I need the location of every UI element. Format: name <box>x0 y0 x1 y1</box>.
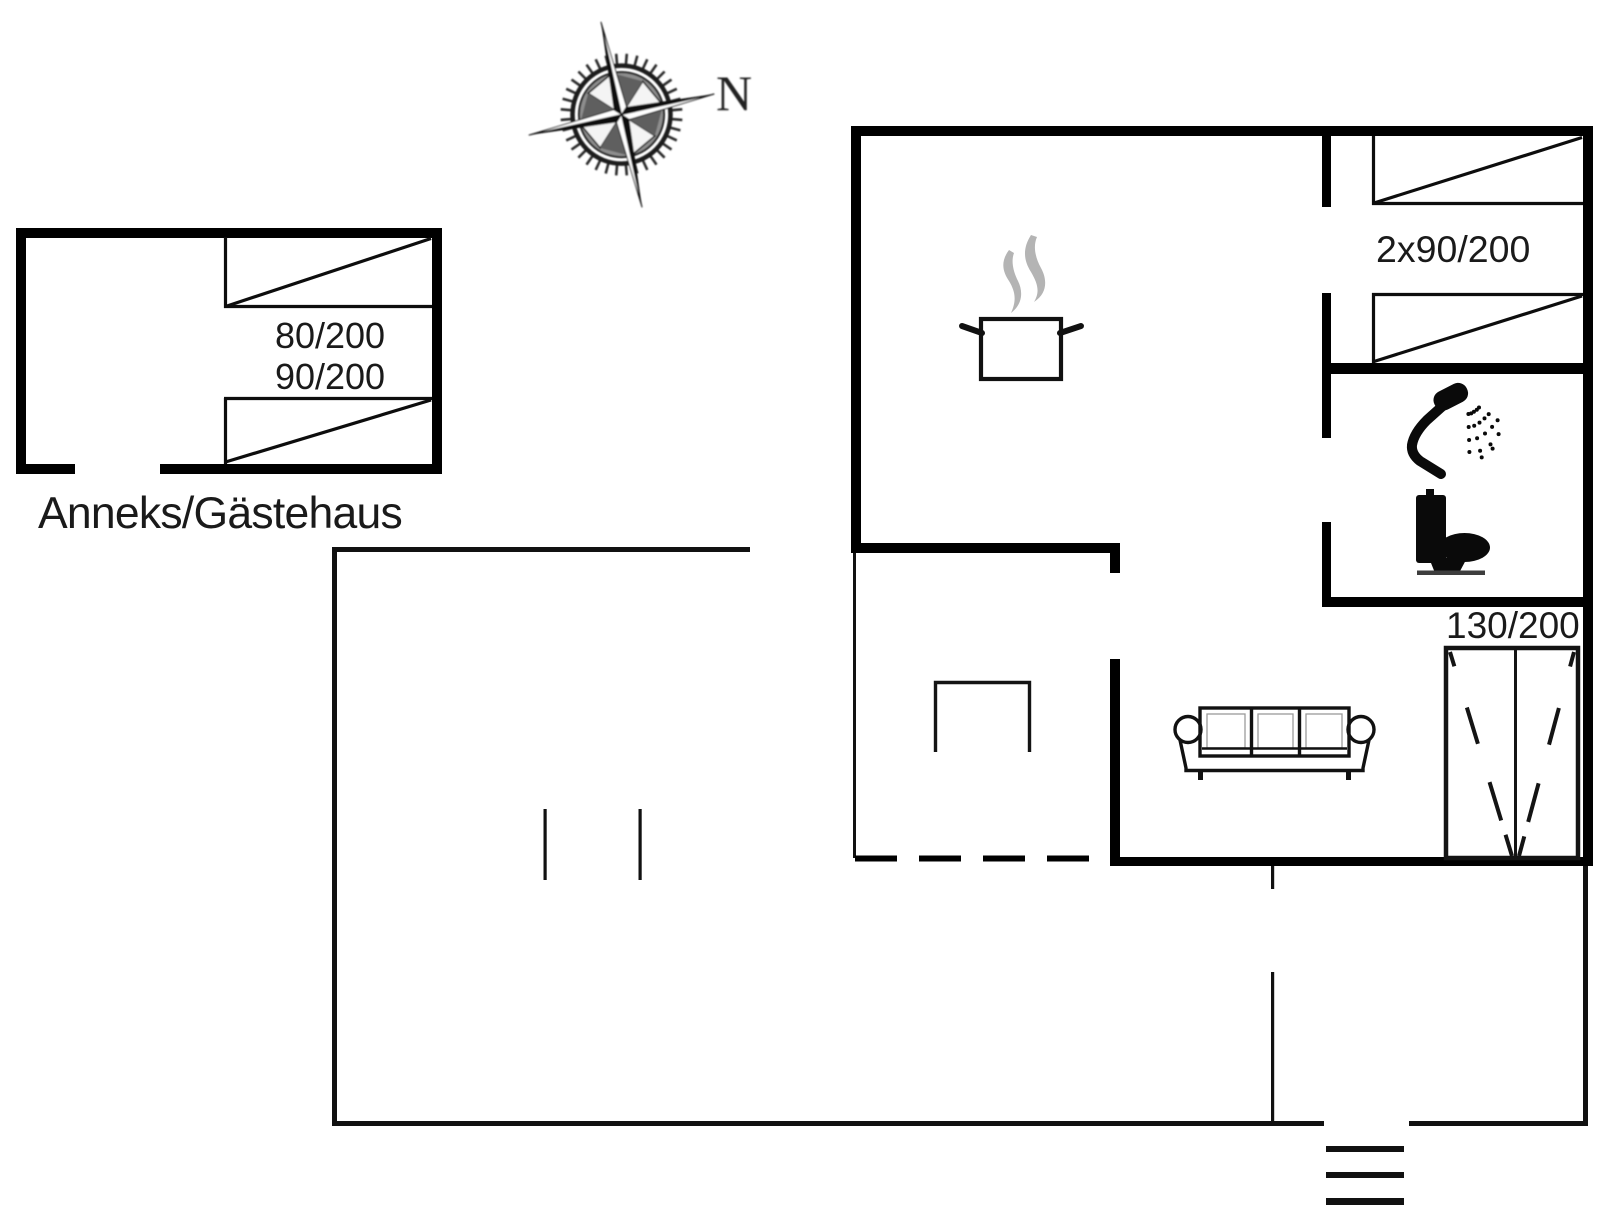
svg-text:80/200: 80/200 <box>275 315 385 356</box>
svg-text:N: N <box>716 65 752 121</box>
svg-text:2x90/200: 2x90/200 <box>1376 228 1530 270</box>
svg-text:Anneks/Gästehaus: Anneks/Gästehaus <box>38 489 402 538</box>
svg-text:90/200: 90/200 <box>275 356 385 397</box>
svg-text:130/200: 130/200 <box>1446 605 1580 646</box>
